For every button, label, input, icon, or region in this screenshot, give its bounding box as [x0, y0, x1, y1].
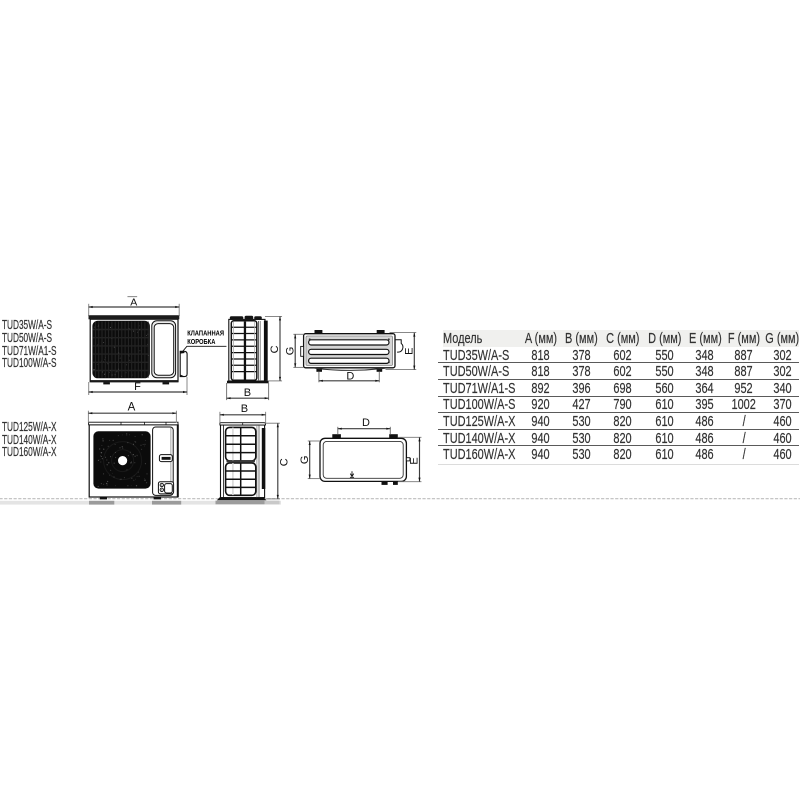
svg-text:B: B: [244, 387, 251, 399]
svg-text:A: A: [128, 402, 136, 414]
svg-text:A: A: [130, 297, 137, 309]
svg-text:E: E: [403, 348, 415, 355]
svg-text:G: G: [285, 347, 297, 356]
svg-text:F: F: [134, 381, 141, 393]
svg-text:C: C: [279, 458, 291, 466]
svg-text:КОРОБКА: КОРОБКА: [187, 337, 216, 346]
svg-text:E: E: [409, 457, 421, 464]
svg-text:B: B: [241, 403, 248, 415]
svg-text:G: G: [299, 456, 311, 465]
svg-text:D: D: [362, 417, 370, 429]
svg-text:D: D: [346, 371, 354, 383]
svg-text:C: C: [269, 345, 281, 353]
